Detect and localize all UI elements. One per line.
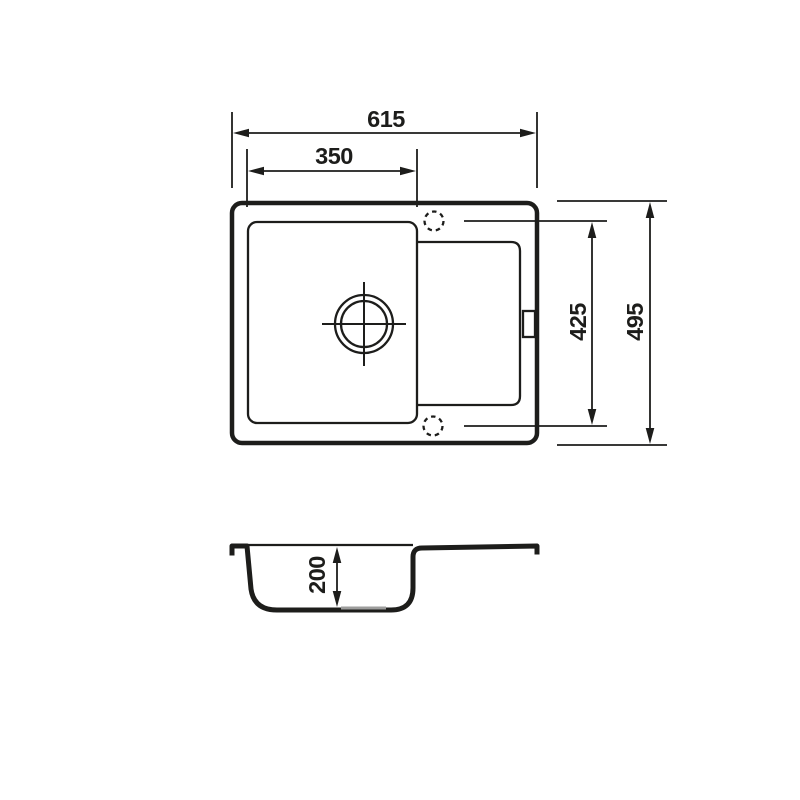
arrowhead-right bbox=[520, 129, 536, 138]
drainer-outline bbox=[417, 242, 520, 405]
tap-hole-bottom bbox=[424, 417, 443, 436]
arrowhead-top bbox=[588, 222, 597, 238]
section-view: 200 bbox=[232, 545, 537, 610]
drawing-page: 615 350 425 495 200 bbox=[0, 0, 800, 800]
arrowhead-bottom bbox=[646, 428, 655, 444]
arrowhead-left bbox=[233, 129, 249, 138]
dimension-overall-width: 615 bbox=[232, 106, 537, 188]
dimension-bowl-width: 350 bbox=[247, 143, 417, 207]
arrowhead-right bbox=[400, 167, 416, 176]
top-view bbox=[232, 203, 537, 443]
arrowhead-top bbox=[333, 547, 342, 563]
arrowhead-bottom bbox=[588, 409, 597, 425]
overflow-slot bbox=[523, 311, 535, 337]
dimension-label-bowl-depth: 200 bbox=[304, 556, 330, 594]
arrowhead-top bbox=[646, 202, 655, 218]
section-profile bbox=[232, 546, 537, 610]
bowl-outline bbox=[248, 222, 417, 423]
arrowhead-left bbox=[248, 167, 264, 176]
tap-hole-top bbox=[425, 212, 444, 231]
dimension-label-overall-depth: 495 bbox=[622, 303, 648, 341]
dimension-bowl-depth: 200 bbox=[304, 547, 341, 607]
sink-dimension-drawing: 615 350 425 495 200 bbox=[0, 0, 800, 800]
dimension-label-overall-width: 615 bbox=[367, 106, 405, 132]
dimension-label-bowl-width: 350 bbox=[315, 143, 353, 169]
dimension-label-tap-hole-span: 425 bbox=[565, 303, 591, 341]
arrowhead-bottom bbox=[333, 591, 342, 607]
